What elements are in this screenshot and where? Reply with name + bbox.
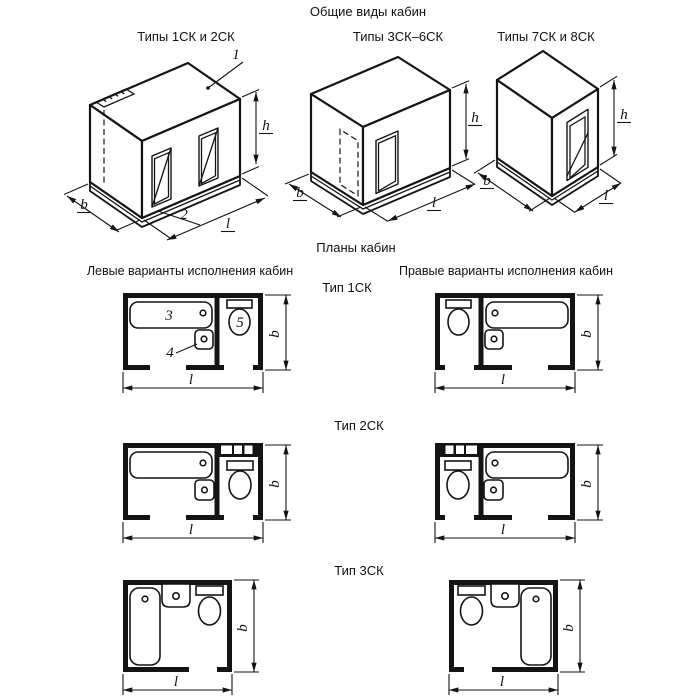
dim-l-label: l	[500, 674, 504, 690]
dim-h-label: h	[471, 110, 479, 126]
bathtub	[486, 302, 568, 328]
dim-b-label: b	[296, 185, 304, 201]
washbasin	[195, 480, 214, 500]
dim-h-label: h	[262, 118, 270, 134]
dim-h-label: h	[620, 107, 628, 123]
dim-b-label: b	[483, 173, 491, 189]
view1-heading: Типы 1СК и 2СК	[137, 29, 235, 44]
dim-l-label: l	[226, 216, 230, 232]
dim-b-label: b	[235, 624, 251, 632]
dim-b-label: b	[561, 624, 577, 632]
dim-l-label: l	[189, 522, 193, 538]
doorway-front	[376, 131, 398, 194]
callout-5-label: 5	[236, 315, 244, 331]
dim-b-label: b	[267, 330, 283, 338]
washbasin	[195, 330, 213, 349]
dim-b-label: b	[80, 197, 88, 213]
gost-cabin-figure: Общие виды кабин Типы 1СК и 2СК Типы 3СК…	[0, 0, 700, 700]
toilet	[458, 586, 485, 625]
plans-title: Планы кабин	[316, 240, 395, 255]
bathtub	[130, 452, 212, 478]
dim-b-label: b	[267, 480, 283, 488]
dim-b-label: b	[579, 480, 595, 488]
dim-l-label: l	[174, 674, 178, 690]
row1-heading: Тип 1СК	[322, 280, 372, 295]
washbasin	[162, 584, 190, 607]
dim-l-label: l	[604, 188, 608, 204]
bathtub	[130, 588, 160, 665]
left-variants-heading: Левые варианты исполнения кабин	[87, 264, 293, 278]
vent-block	[215, 443, 264, 457]
callout-2-label: 2	[180, 207, 188, 223]
doorway-left	[152, 148, 171, 207]
vent-block	[435, 443, 484, 457]
dim-l-label: l	[501, 372, 505, 388]
toilet	[227, 461, 253, 499]
doorway-right	[199, 128, 218, 186]
toilet	[446, 300, 471, 335]
view3-heading: Типы 7СК и 8СК	[497, 29, 595, 44]
dim-l-label: l	[432, 195, 436, 211]
callout-4-label: 4	[166, 345, 174, 361]
washbasin	[484, 480, 503, 500]
dim-l-label: l	[189, 372, 193, 388]
figure-title: Общие виды кабин	[310, 4, 426, 19]
dim-b-label: b	[579, 330, 595, 338]
toilet	[445, 461, 471, 499]
doorway-front	[567, 109, 588, 180]
dim-l-label: l	[501, 522, 505, 538]
callout-3-label: 3	[164, 308, 173, 324]
callout-1-label: 1	[232, 47, 240, 63]
view2-heading: Типы 3СК–6СК	[353, 29, 444, 44]
bathtub	[521, 588, 551, 665]
right-variants-heading: Правые варианты исполнения кабин	[399, 264, 613, 278]
bathtub	[486, 452, 568, 478]
drawing-page: Общие виды кабин Типы 1СК и 2СК Типы 3СК…	[0, 0, 700, 700]
washbasin	[485, 330, 503, 349]
row3-heading: Тип 3СК	[334, 563, 384, 578]
toilet	[196, 586, 223, 625]
row2-heading: Тип 2СК	[334, 418, 384, 433]
washbasin	[491, 584, 519, 607]
